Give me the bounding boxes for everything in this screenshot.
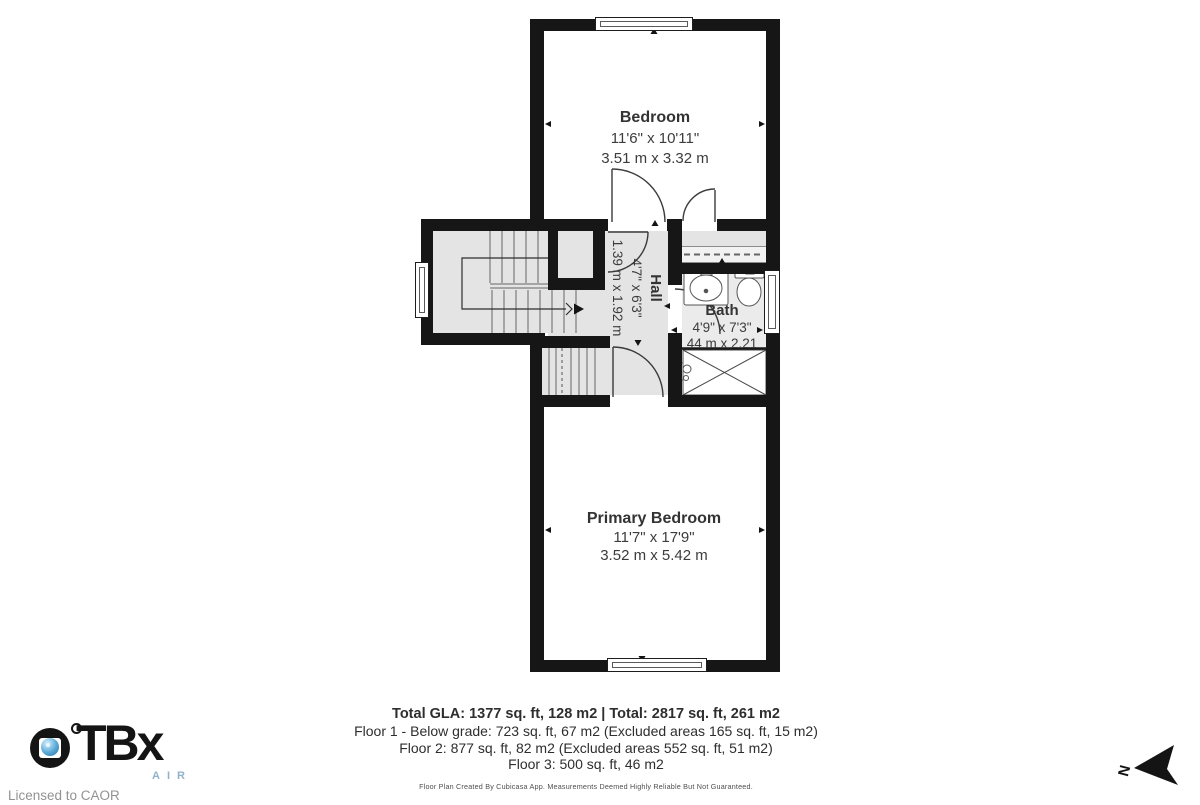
room-label-bath: Bath 4'9" x 7'3" 44 m x 2.21 <box>666 302 778 352</box>
bedroom-door <box>612 169 665 222</box>
room-label-bedroom: Bedroom 11'6" x 10'11" 3.51 m x 3.32 m <box>545 107 765 169</box>
floor2-line: Floor 2: 877 sq. ft, 82 m2 (Excluded are… <box>186 740 986 757</box>
wall-segment <box>668 219 682 285</box>
wall-segment <box>421 219 608 231</box>
stair-treads-lower <box>492 290 576 333</box>
room-dimension-metric: 1.39 m x 1.92 m <box>608 228 627 348</box>
room-dimension-imperial: 11'7" x 17'9" <box>544 529 764 547</box>
license-text: Licensed to CAOR <box>8 788 120 803</box>
wall-segment <box>668 395 780 407</box>
wall-segment <box>530 19 544 231</box>
room-label-primary-bedroom: Primary Bedroom 11'7" x 17'9" 3.52 m x 5… <box>544 509 764 565</box>
otbx-air-logo: TBx AIR <box>24 712 214 787</box>
area-summary: Total GLA: 1377 sq. ft, 128 m2 | Total: … <box>186 706 986 791</box>
room-name: Bedroom <box>545 107 765 129</box>
room-name: Primary Bedroom <box>544 509 764 529</box>
disclaimer-text: Floor Plan Created By Cubicasa App. Meas… <box>186 782 986 791</box>
logo-text: TBx <box>76 714 161 772</box>
wall-segment <box>717 219 766 231</box>
room-name: Bath <box>666 302 778 320</box>
window <box>415 262 429 318</box>
wall-segment <box>668 263 768 274</box>
room-label-hall: Hall 4'7" x 6'3" 1.39 m x 1.92 m <box>603 228 665 348</box>
camera-lens-icon <box>30 728 70 768</box>
floor1-line: Floor 1 - Below grade: 723 sq. ft, 67 m2… <box>186 723 986 740</box>
wall-segment <box>421 333 545 345</box>
room-dimension-metric: 3.51 m x 3.32 m <box>545 149 765 169</box>
north-arrow-icon <box>1134 745 1178 785</box>
wall-segment <box>530 395 544 672</box>
wall-segment <box>548 278 605 290</box>
stair-treads-upper <box>490 231 548 288</box>
total-gla-line: Total GLA: 1377 sq. ft, 128 m2 | Total: … <box>186 706 986 723</box>
floor-plan-canvas: Bedroom 11'6" x 10'11" 3.51 m x 3.32 m H… <box>0 0 1200 805</box>
shower-icon <box>677 349 766 396</box>
floor3-line: Floor 3: 500 sq. ft, 46 m2 <box>186 756 986 773</box>
room-name: Hall <box>646 228 665 348</box>
window <box>595 17 693 31</box>
room-dimension-metric: 44 m x 2.21 <box>666 336 778 352</box>
window <box>607 658 707 672</box>
primary-bedroom-door <box>613 347 663 397</box>
room-dimension-metric: 3.52 m x 5.42 m <box>544 547 764 565</box>
room-dimension-imperial: 4'9" x 7'3" <box>666 320 778 336</box>
stair-treads-down <box>549 348 595 395</box>
room-dimension-imperial: 11'6" x 10'11" <box>545 129 765 149</box>
wall-segment <box>530 336 610 348</box>
logo-sub-text: AIR <box>152 770 192 782</box>
room-dimension-imperial: 4'7" x 6'3" <box>627 228 646 348</box>
closet-door <box>683 189 715 222</box>
